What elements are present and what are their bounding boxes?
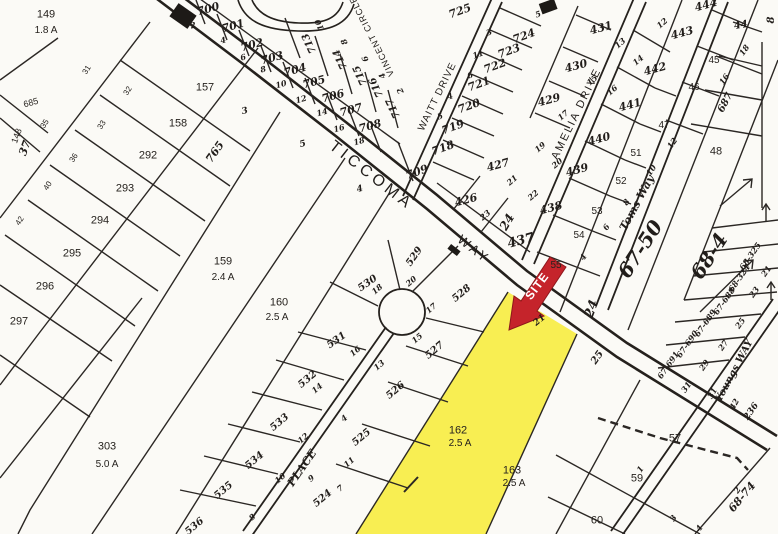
scan-marks (169, 0, 557, 256)
vincent-circle-road (238, 0, 354, 31)
plat-map: 1491.8 A1571582922932942952962973035.0 A… (0, 0, 778, 534)
parcel-boundaries (0, 0, 778, 534)
parcel-line-drawing (0, 0, 778, 534)
